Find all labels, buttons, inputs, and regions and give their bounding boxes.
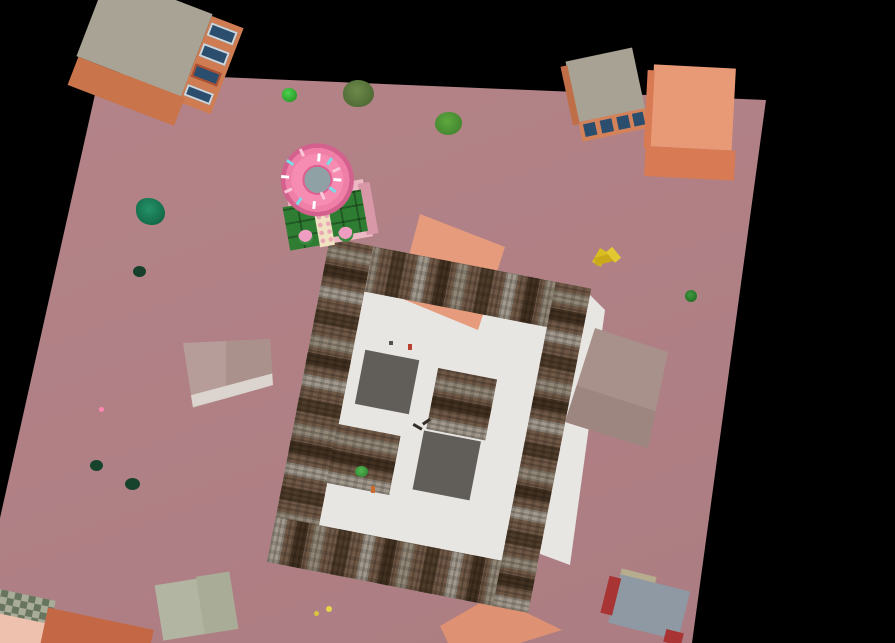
bush-dark (133, 266, 146, 277)
debris-dark (389, 341, 393, 345)
courtyard-block-textured-ne (426, 368, 497, 440)
debris-orange (371, 486, 375, 493)
courtyard-block-textured-sw (326, 424, 400, 495)
building-northeast-plain (642, 64, 748, 184)
bush-courtyard (355, 466, 368, 477)
sprinkle (333, 178, 341, 182)
tree-round-olive (343, 80, 374, 107)
yellow-character (592, 246, 622, 272)
building-southeast-red-stub (663, 629, 684, 643)
window (632, 112, 645, 127)
bush-dark (125, 478, 140, 490)
sprinkle (281, 175, 289, 179)
building-northeast-wall-front (644, 146, 735, 181)
courtyard-block-plain-nw (355, 350, 419, 414)
roof-mark-left (413, 423, 423, 431)
window (583, 122, 597, 137)
coin (314, 611, 319, 616)
debris-red (408, 344, 412, 350)
pink-pickup (99, 407, 104, 412)
building-northeast-top (650, 64, 736, 150)
window (616, 115, 630, 130)
tree-small-bright (282, 88, 297, 102)
courtyard-block-plain-se (413, 430, 481, 500)
coin (326, 606, 332, 612)
tree-small-east (685, 290, 697, 302)
bush-dark (90, 460, 103, 471)
game-viewport[interactable] (0, 0, 895, 643)
roof-mark (414, 420, 432, 430)
window (600, 118, 614, 133)
tree-teal-spiky (136, 198, 165, 225)
building-southeast-roof (608, 574, 690, 640)
donut-shop (262, 130, 382, 258)
